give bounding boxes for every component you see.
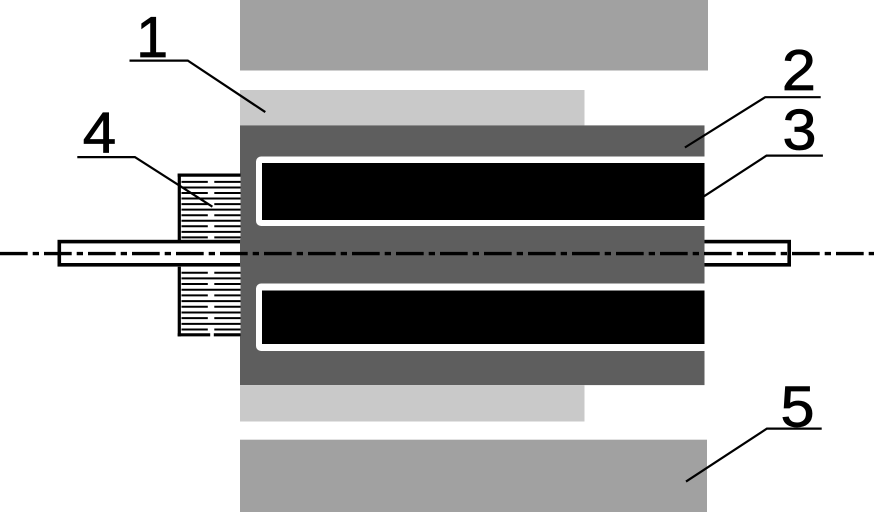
svg-text:2: 2: [782, 38, 816, 103]
svg-text:3: 3: [782, 97, 816, 162]
svg-text:4: 4: [83, 102, 116, 165]
